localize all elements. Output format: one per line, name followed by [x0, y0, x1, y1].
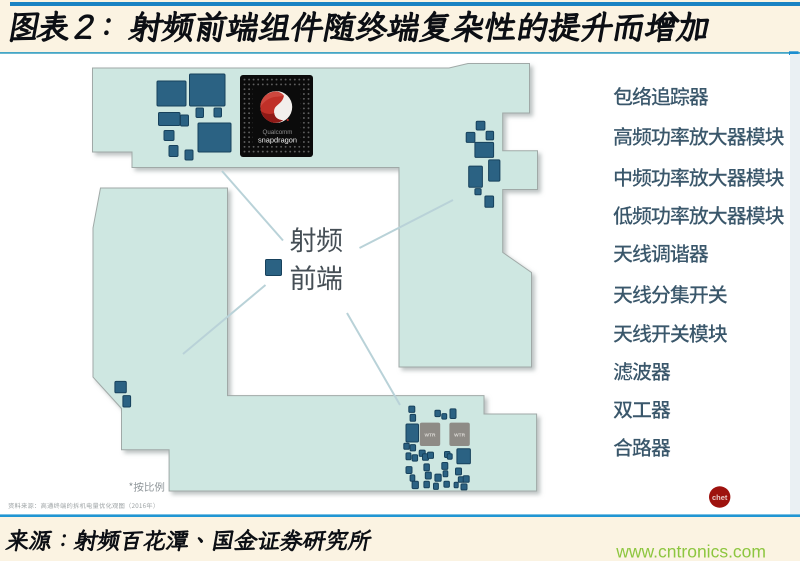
svg-text:chet: chet [712, 493, 728, 502]
svg-text:WTR: WTR [425, 433, 436, 439]
svg-text:snapdragon: snapdragon [258, 136, 297, 145]
svg-text:www.cntronics.com: www.cntronics.com [615, 542, 766, 562]
svg-text:WTR: WTR [454, 433, 465, 439]
